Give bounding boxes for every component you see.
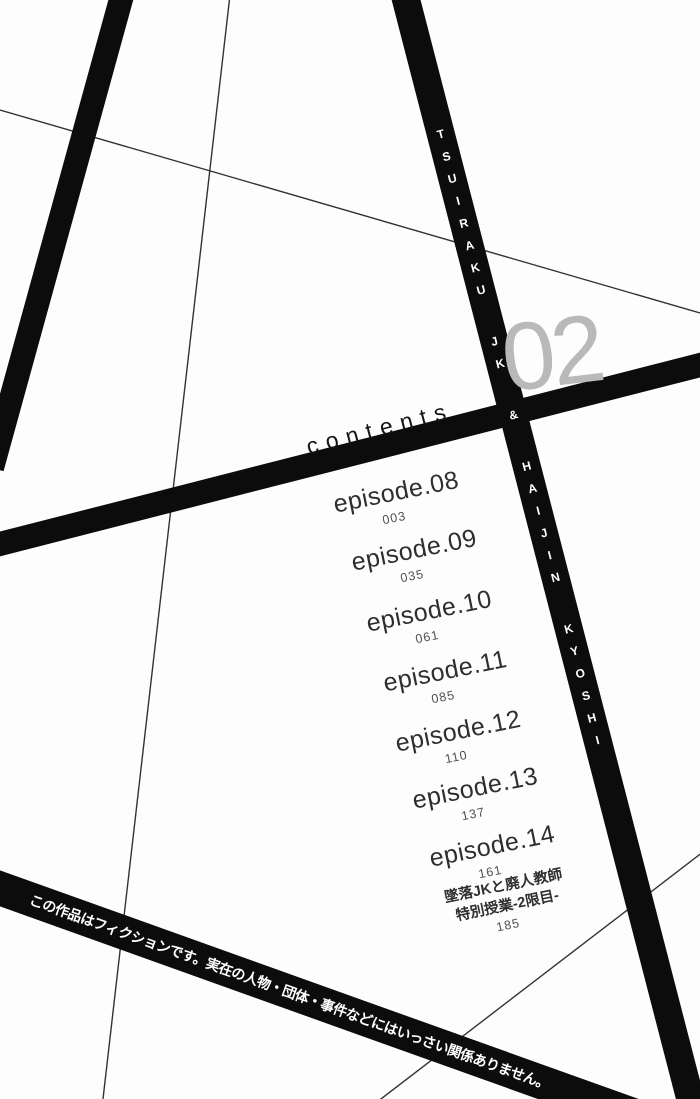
thin-line-upper [0,110,700,313]
diagonal-bar-top-left [0,0,123,468]
volume-number: 02 [497,300,607,407]
contents-page: TSUIRAKUJK&HAIJINKYOSHI 02 contents epis… [0,0,700,1099]
